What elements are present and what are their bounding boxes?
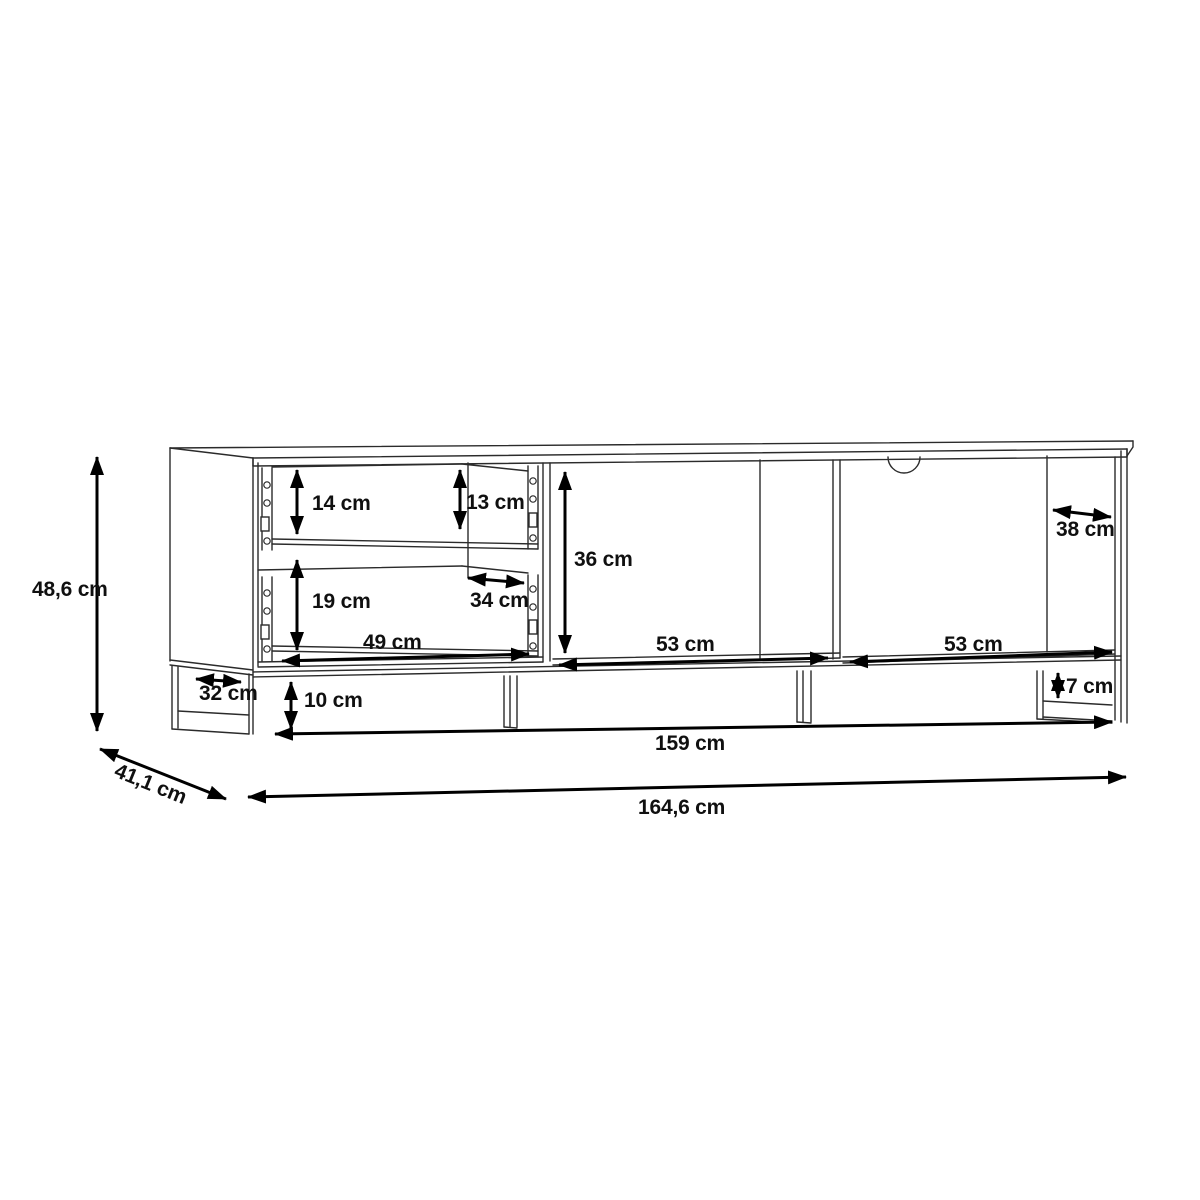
dim-label-compartment-height: 36 cm	[574, 548, 633, 571]
drawer-slide-latch	[529, 620, 537, 634]
dim-arrow-overall-width	[248, 777, 1126, 797]
dim-label-compartment-depth: 38 cm	[1056, 518, 1115, 541]
top-panel	[170, 441, 1133, 466]
dim-arrow-drawer-inner-depth	[468, 578, 524, 583]
dim-label-drawer-inner-depth: 34 cm	[470, 589, 529, 612]
dim-label-leg-height: 10 cm	[304, 689, 363, 712]
compartment-back-edges	[468, 456, 1047, 658]
screw-icon	[530, 535, 536, 541]
dimension-arrows	[97, 457, 1126, 799]
screw-icon	[264, 646, 270, 652]
screw-icon	[530, 496, 536, 502]
dim-label-right-leg-clearance: 7 cm	[1066, 675, 1113, 698]
dim-label-overall-height: 48,6 cm	[32, 578, 108, 601]
dim-label-middle-compartment-width: 53 cm	[656, 633, 715, 656]
middle-leg-right	[797, 671, 811, 723]
dim-label-right-compartment-width: 53 cm	[944, 633, 1003, 656]
screw-icon	[530, 604, 536, 610]
dim-label-top-drawer-back-height: 13 cm	[466, 491, 525, 514]
screw-icon	[264, 590, 270, 596]
screw-icon	[264, 608, 270, 614]
screw-icon	[530, 478, 536, 484]
middle-leg-left	[504, 676, 517, 728]
dim-arrow-compartment-depth	[1053, 510, 1111, 517]
drawer-slide-latch	[261, 517, 269, 531]
dim-label-bottom-drawer-height: 19 cm	[312, 590, 371, 613]
screw-icon	[530, 586, 536, 592]
dim-label-top-drawer-front-height: 14 cm	[312, 492, 371, 515]
dim-label-base-width: 159 cm	[655, 732, 725, 755]
dim-label-drawer-inner-width: 49 cm	[363, 631, 422, 654]
dim-label-overall-depth: 41,1 cm	[111, 759, 190, 809]
screw-icon	[530, 643, 536, 649]
screw-icon	[264, 500, 270, 506]
furniture-technical-drawing: 48,6 cm 41,1 cm 14 cm 13 cm 19 cm 34 cm …	[0, 0, 1200, 1200]
drawer-slide-latch	[529, 513, 537, 527]
dimension-labels: 48,6 cm 41,1 cm 14 cm 13 cm 19 cm 34 cm …	[32, 491, 1115, 819]
dim-label-left-leg-width: 32 cm	[199, 682, 258, 705]
right-side-panel	[1115, 449, 1127, 723]
dim-label-overall-width: 164,6 cm	[638, 796, 725, 819]
drawer-slide-latch	[261, 625, 269, 639]
screw-icon	[264, 538, 270, 544]
screw-icon	[264, 482, 270, 488]
